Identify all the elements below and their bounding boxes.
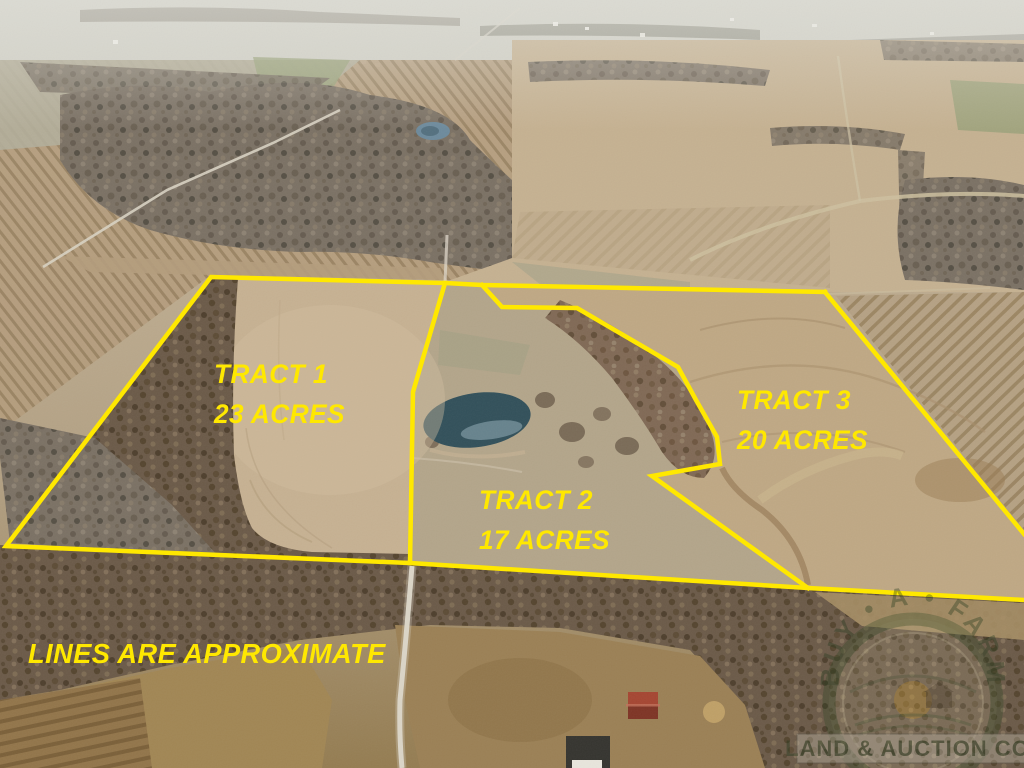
tract3-acres: 20 ACRES — [737, 420, 868, 460]
tract1-name: TRACT 1 — [214, 354, 345, 394]
disclaimer-label: LINES ARE APPROXIMATE — [28, 634, 386, 674]
tract1-acres: 23 ACRES — [214, 394, 345, 434]
tract2-acres: 17 ACRES — [479, 520, 610, 560]
tract3-name: TRACT 3 — [737, 380, 868, 420]
disclaimer-text: LINES ARE APPROXIMATE — [28, 634, 386, 674]
tract2-label: TRACT 2 17 ACRES — [479, 480, 610, 560]
tract3-label: TRACT 3 20 ACRES — [737, 380, 868, 460]
tract1-label: TRACT 1 23 ACRES — [214, 354, 345, 434]
tract2-name: TRACT 2 — [479, 480, 610, 520]
logo-banner: LAND & AUCTION CO. — [785, 734, 1024, 763]
aerial-tract-photo: BUY • A • FARM LAND & AUCTION CO. TRACT … — [0, 0, 1024, 768]
logo-banner-text: LAND & AUCTION CO. — [785, 736, 1024, 761]
